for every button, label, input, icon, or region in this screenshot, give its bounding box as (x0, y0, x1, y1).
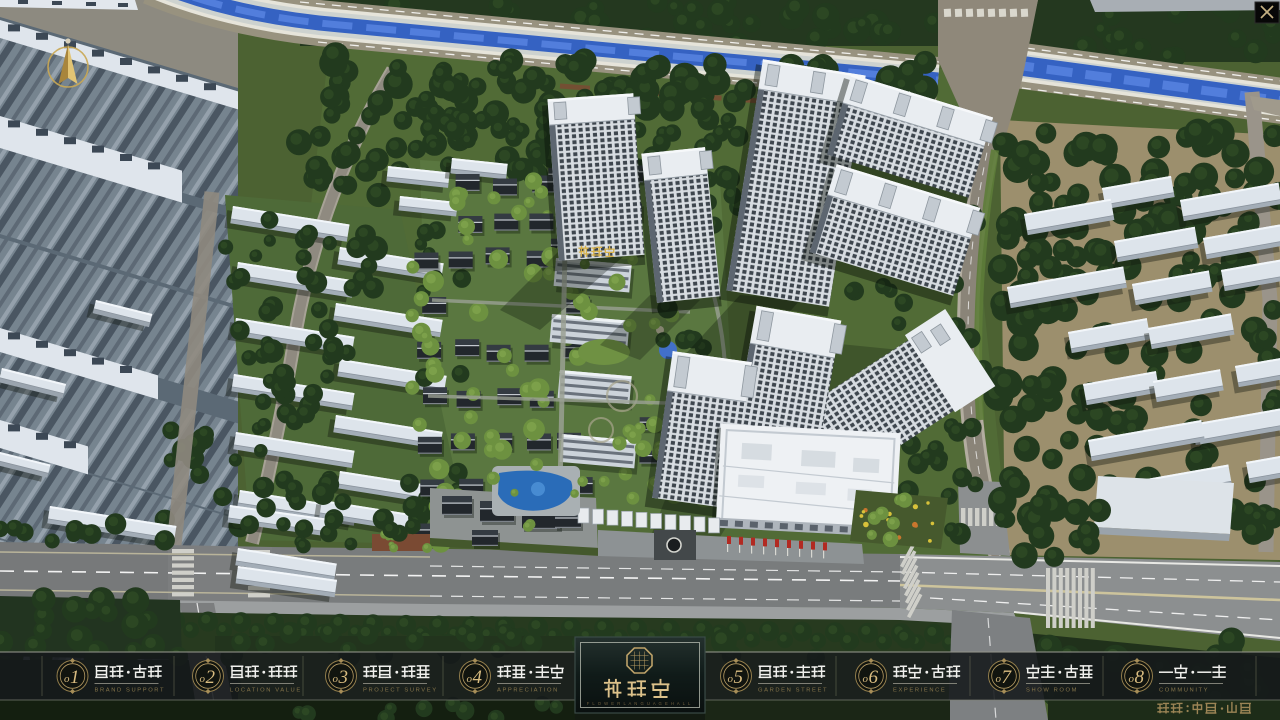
svg-text:6: 6 (869, 667, 879, 688)
svg-text:LOCATION VALUE: LOCATION VALUE (230, 688, 302, 694)
svg-text:8: 8 (1135, 667, 1145, 688)
svg-text:7: 7 (1002, 667, 1013, 688)
svg-text:4: 4 (473, 667, 483, 688)
svg-text:3: 3 (338, 667, 349, 688)
svg-text:PROJECT SURVEY: PROJECT SURVEY (363, 688, 438, 694)
svg-text:2: 2 (206, 667, 216, 688)
svg-text:GARDEN STREET: GARDEN STREET (758, 688, 828, 694)
svg-text:1: 1 (70, 667, 80, 688)
svg-text:COMMUNITY: COMMUNITY (1159, 688, 1209, 694)
svg-text:5: 5 (734, 667, 744, 688)
svg-text:EXPERIENCE: EXPERIENCE (893, 688, 946, 694)
svg-text:APPRECIATION: APPRECIATION (497, 688, 559, 694)
svg-text:SHOW ROOM: SHOW ROOM (1026, 688, 1078, 694)
svg-text:F L O W E R L A N G U A G E: F L O W E R L A N G U A G E H A L L (587, 701, 692, 706)
svg-text:BRAND SUPPORT: BRAND SUPPORT (95, 688, 166, 694)
